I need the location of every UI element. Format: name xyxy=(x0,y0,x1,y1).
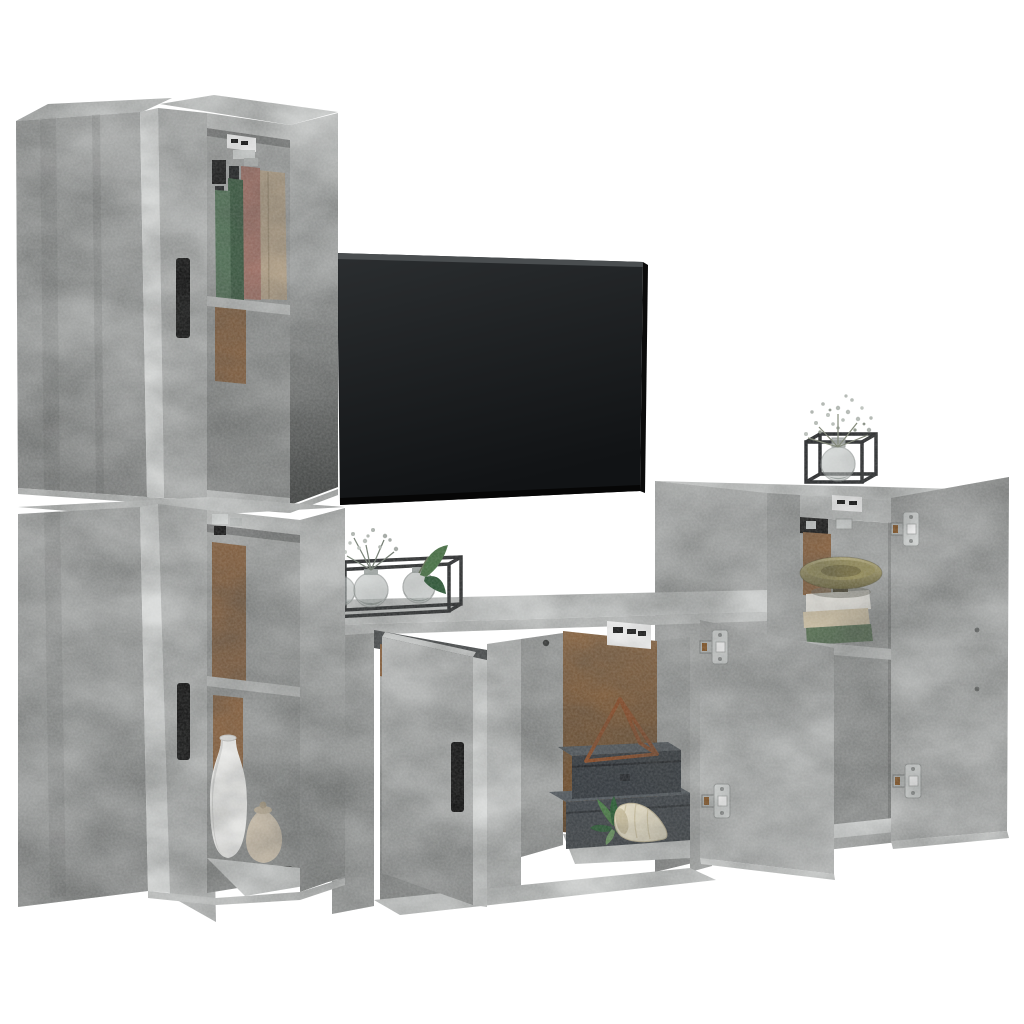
lower-left-cabinet xyxy=(18,497,345,922)
door-screw-hole xyxy=(975,628,980,633)
bench-bracket-mark2 xyxy=(627,629,636,634)
right-cabinet-door xyxy=(891,477,1009,849)
decor-bowl xyxy=(800,557,882,598)
ll-open-door-shading xyxy=(18,507,148,907)
right-cabinet-label-mark2 xyxy=(849,501,857,505)
ul-label-mark xyxy=(231,139,238,143)
tv-cabinet-set-image xyxy=(0,0,1024,1024)
right-cabinet-label xyxy=(832,495,862,512)
ul-label-mark2 xyxy=(241,141,248,145)
right-cabinet-top-hinge-plate xyxy=(836,519,852,529)
ul-hardboard-panel xyxy=(215,307,246,384)
upper-left-cabinet xyxy=(16,95,338,513)
right-cabinet-book-stack xyxy=(803,590,873,645)
right-cabinet-label-mark xyxy=(837,500,845,504)
book-green xyxy=(215,190,231,300)
bench-left-door xyxy=(382,632,487,907)
door-screw-hole2 xyxy=(975,687,980,692)
upper-box-clasp xyxy=(620,774,630,781)
glass-vase-sphere xyxy=(821,447,855,481)
bench-left-door-handle xyxy=(451,742,464,812)
product-photo xyxy=(0,0,1024,1024)
bench-cam-lock-hole xyxy=(543,640,549,646)
ll-door-handle xyxy=(177,683,190,760)
bench-left-door-edge xyxy=(473,657,487,907)
bowl-inner-center xyxy=(821,565,861,577)
right-cabinet-bracket-plate xyxy=(806,521,816,529)
ul-right-side-panel xyxy=(290,113,338,505)
book-beige xyxy=(258,170,287,300)
ll-hardboard-upper xyxy=(212,542,246,686)
bench-center-left-wall xyxy=(521,633,563,857)
tv-screen xyxy=(337,253,643,505)
bench-bracket-mark xyxy=(613,627,623,633)
book-rose xyxy=(241,166,261,300)
bench-divider-face xyxy=(487,639,521,899)
ll-right-side-panel xyxy=(300,508,345,892)
ul-door-handle xyxy=(176,258,190,338)
bench-bracket-mark3 xyxy=(638,631,646,636)
ul-open-door-shading xyxy=(16,112,147,497)
tv xyxy=(337,253,648,505)
bench-right-door xyxy=(700,620,835,880)
